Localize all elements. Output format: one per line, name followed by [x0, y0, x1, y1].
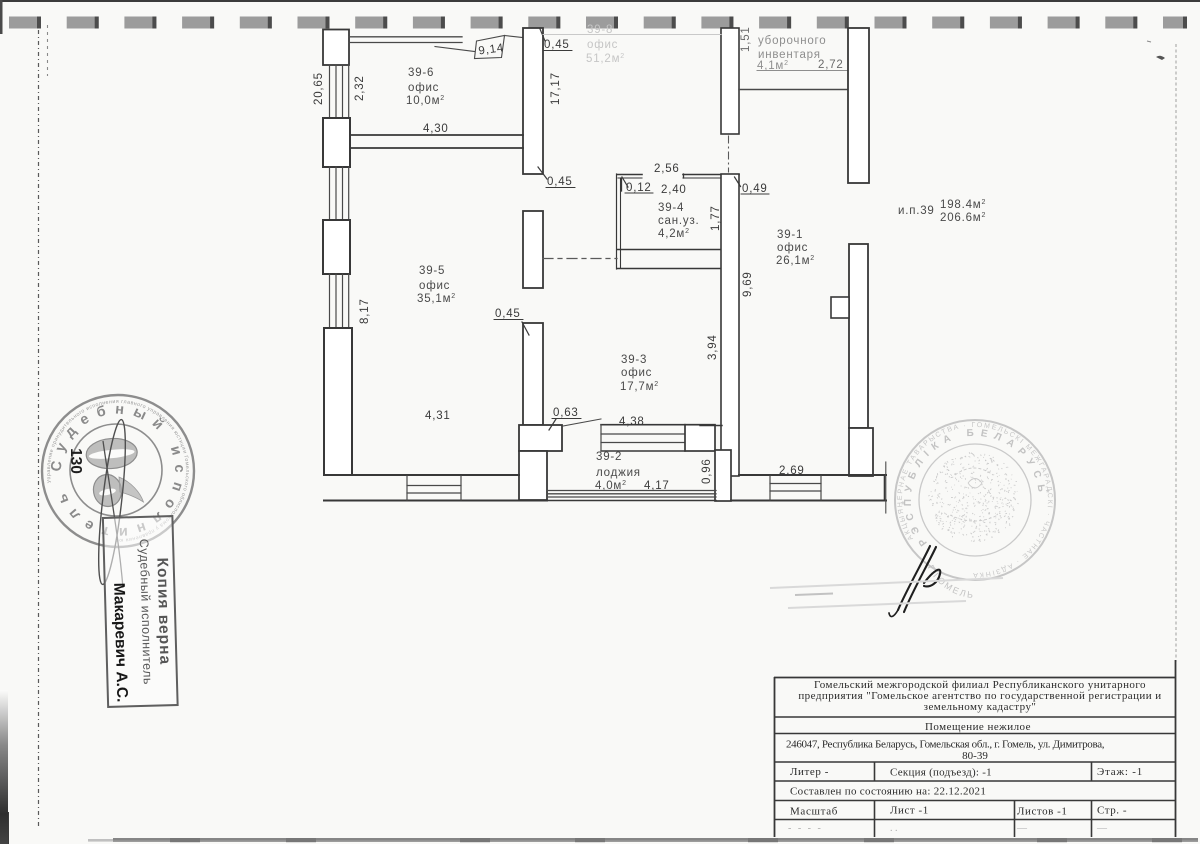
svg-text:офис: офис	[419, 280, 450, 292]
svg-text:- - - -: - - - -	[788, 823, 823, 834]
svg-text:35,1м2: 35,1м2	[417, 293, 456, 305]
svg-text:офис: офис	[777, 242, 808, 254]
svg-text:20,65: 20,65	[313, 72, 325, 105]
svg-text:80-39: 80-39	[962, 750, 988, 762]
svg-text:*: *	[1046, 488, 1050, 499]
svg-text:39-4: 39-4	[658, 202, 684, 214]
svg-text:Этаж: -1: Этаж: -1	[1097, 766, 1143, 778]
svg-text:0,45: 0,45	[544, 39, 570, 51]
svg-text:246047, Республика Беларусь, Г: 246047, Республика Беларусь, Гомельская …	[786, 739, 1105, 751]
svg-text:лоджия: лоджия	[596, 467, 641, 479]
svg-text:4,30: 4,30	[423, 123, 449, 135]
svg-text:. .: . .	[890, 823, 898, 834]
svg-text:офис: офис	[408, 82, 439, 94]
svg-text:уборочного: уборочного	[758, 35, 826, 47]
svg-text:—: —	[1096, 823, 1108, 834]
svg-text:Секция (подъезд): -1: Секция (подъезд): -1	[890, 767, 992, 779]
svg-text:—: —	[1016, 823, 1028, 834]
svg-text:39-1: 39-1	[777, 229, 803, 241]
svg-text:206.6м2: 206.6м2	[940, 212, 986, 224]
svg-text:офис: офис	[621, 367, 652, 379]
svg-text:17,7м2: 17,7м2	[620, 381, 659, 393]
svg-text:9,69: 9,69	[742, 271, 754, 297]
svg-text:0,12: 0,12	[626, 182, 652, 194]
svg-text:39-6: 39-6	[408, 67, 434, 79]
svg-text:2,56: 2,56	[654, 163, 680, 175]
svg-text:10,0м2: 10,0м2	[406, 95, 445, 107]
svg-text:39-5: 39-5	[419, 265, 445, 277]
svg-text:Составлен по состоянию на: 22.: Составлен по состоянию на: 22.12.2021	[790, 786, 986, 798]
svg-text:Стр. -: Стр. -	[1097, 805, 1127, 817]
svg-text:*: *	[901, 500, 905, 511]
svg-text:и.п.39: и.п.39	[898, 205, 935, 217]
svg-text:сан.уз.: сан.уз.	[658, 215, 700, 227]
svg-text:2,40: 2,40	[661, 184, 687, 196]
svg-text:0,96: 0,96	[701, 458, 713, 484]
svg-text:130: 130	[67, 448, 84, 474]
svg-text:39-3: 39-3	[621, 354, 647, 366]
svg-text:4,31: 4,31	[425, 410, 451, 422]
svg-text:39-2: 39-2	[596, 451, 622, 463]
svg-text:198.4м2: 198.4м2	[940, 199, 986, 211]
svg-text:2,72: 2,72	[818, 59, 844, 71]
svg-text:4,38: 4,38	[619, 416, 645, 428]
svg-text:0,45: 0,45	[495, 308, 521, 320]
svg-text:Листов -1: Листов -1	[1017, 806, 1067, 818]
svg-text:земельному кадастру": земельному кадастру"	[924, 701, 1037, 713]
svg-text:51,2м2: 51,2м2	[586, 53, 625, 65]
svg-text:17,17: 17,17	[550, 72, 562, 105]
svg-text:8,17: 8,17	[359, 298, 371, 324]
svg-text:Литер -: Литер -	[790, 766, 829, 778]
svg-text:4,2м2: 4,2м2	[658, 228, 690, 240]
svg-text:1,51: 1,51	[740, 26, 752, 52]
svg-text:0,45: 0,45	[547, 176, 573, 188]
svg-text:Копия верна: Копия верна	[153, 557, 173, 665]
svg-text:Масштаб: Масштаб	[790, 806, 838, 818]
svg-text:Помещение нежилое: Помещение нежилое	[925, 721, 1031, 733]
svg-text:26,1м2: 26,1м2	[776, 255, 815, 267]
svg-text:офис: офис	[587, 39, 618, 51]
svg-text:2,32: 2,32	[354, 75, 366, 101]
svg-text:0,49: 0,49	[742, 183, 768, 195]
svg-text:Макаревич А.С.: Макаревич А.С.	[110, 583, 130, 703]
svg-text:3,94: 3,94	[707, 334, 719, 360]
svg-text:0,63: 0,63	[553, 407, 579, 419]
svg-text:Лист -1: Лист -1	[890, 805, 929, 817]
